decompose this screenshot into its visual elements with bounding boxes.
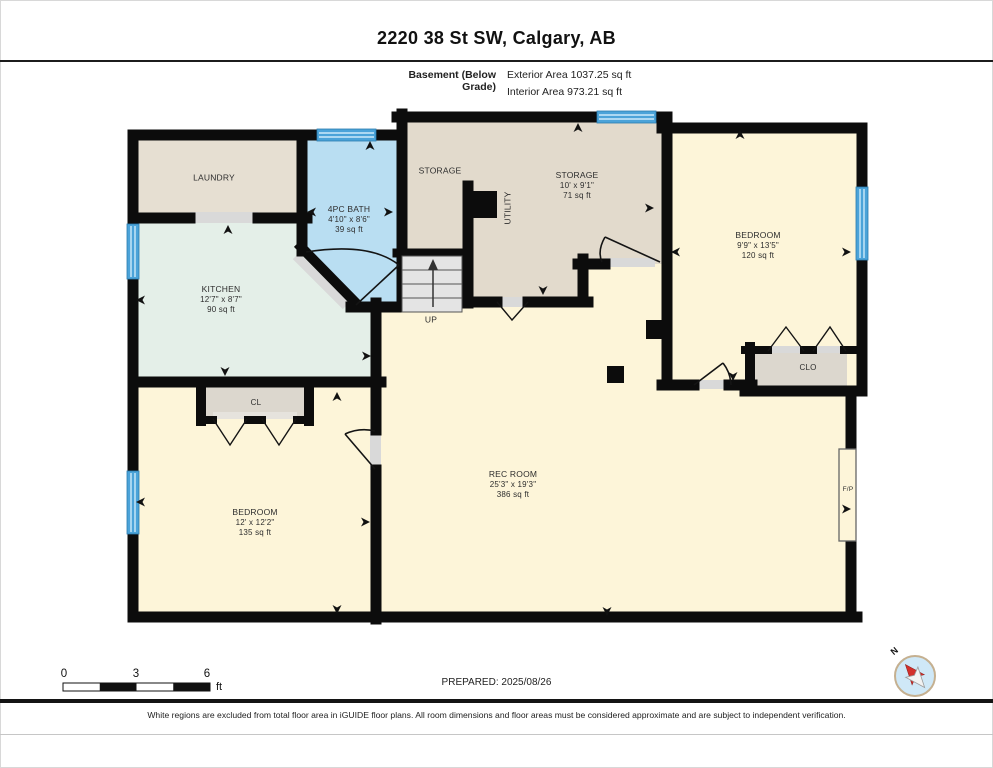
stairs [402, 256, 462, 312]
room-label-closet-clo: CLO [799, 363, 816, 373]
prepared-date: PREPARED: 2025/08/26 [0, 677, 993, 688]
fireplace-label: F/P [843, 486, 854, 494]
footer-divider [0, 699, 993, 703]
room-label-rec-room: REC ROOM 25'3" x 19'3" 386 sq ft [489, 469, 537, 501]
fireplace [839, 449, 856, 541]
room-label-kitchen: KITCHEN 12'7" x 8'7" 90 sq ft [200, 284, 242, 316]
compass-icon [895, 656, 935, 696]
room-label-storage: STORAGE 10' x 9'1" 71 sq ft [556, 170, 599, 202]
room-label-bedroom-left: BEDROOM 12' x 12'2" 135 sq ft [232, 507, 277, 539]
bottom-divider [0, 734, 993, 735]
disclaimer-text: White regions are excluded from total fl… [0, 710, 993, 720]
room-label-bedroom-right: BEDROOM 9'9" x 13'5" 120 sq ft [735, 230, 780, 262]
room-label-laundry: LAUNDRY [193, 172, 235, 183]
room-label-bath: 4PC BATH 4'10" x 8'6" 39 sq ft [328, 204, 371, 236]
room-label-storage-small: STORAGE [419, 165, 462, 176]
stairs-up-label: UP [425, 314, 437, 325]
room-label-utility: UTILITY [502, 191, 513, 224]
floorplan-page: 2220 38 St SW, Calgary, AB Basement (Bel… [0, 0, 993, 768]
room-label-closet-cl: CL [251, 398, 262, 408]
floor-plan-drawing [0, 0, 993, 768]
